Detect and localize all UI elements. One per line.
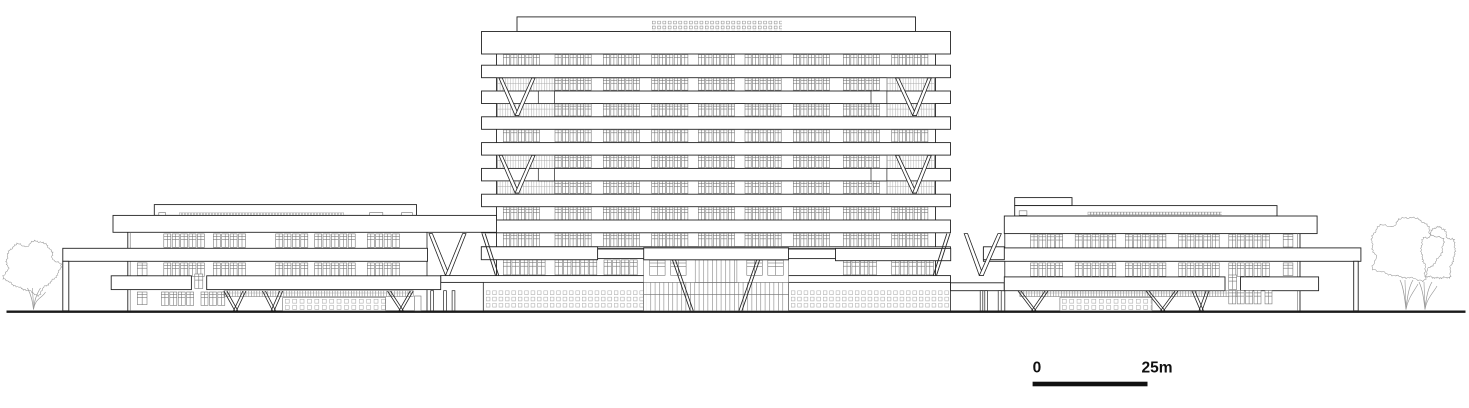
svg-text:25m: 25m: [1142, 360, 1173, 377]
svg-text:0: 0: [1033, 360, 1042, 377]
